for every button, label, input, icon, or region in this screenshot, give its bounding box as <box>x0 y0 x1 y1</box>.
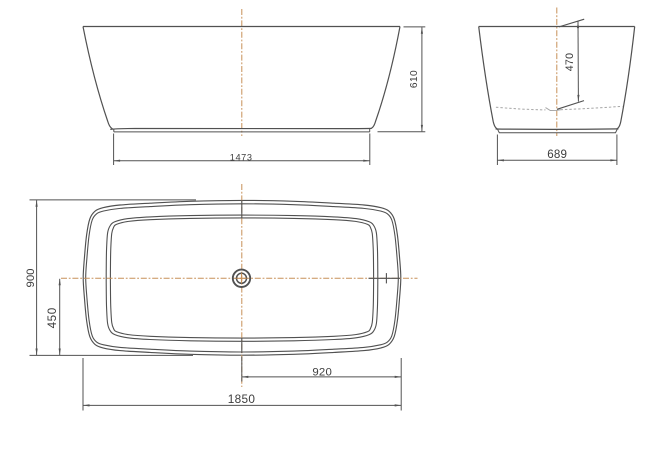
svg-text:1473: 1473 <box>230 153 253 163</box>
svg-text:470: 470 <box>564 53 576 72</box>
svg-text:1850: 1850 <box>228 392 256 406</box>
svg-text:920: 920 <box>312 366 332 378</box>
svg-text:610: 610 <box>409 70 420 88</box>
svg-text:450: 450 <box>46 307 59 328</box>
svg-text:900: 900 <box>25 268 37 287</box>
svg-text:689: 689 <box>547 148 567 161</box>
